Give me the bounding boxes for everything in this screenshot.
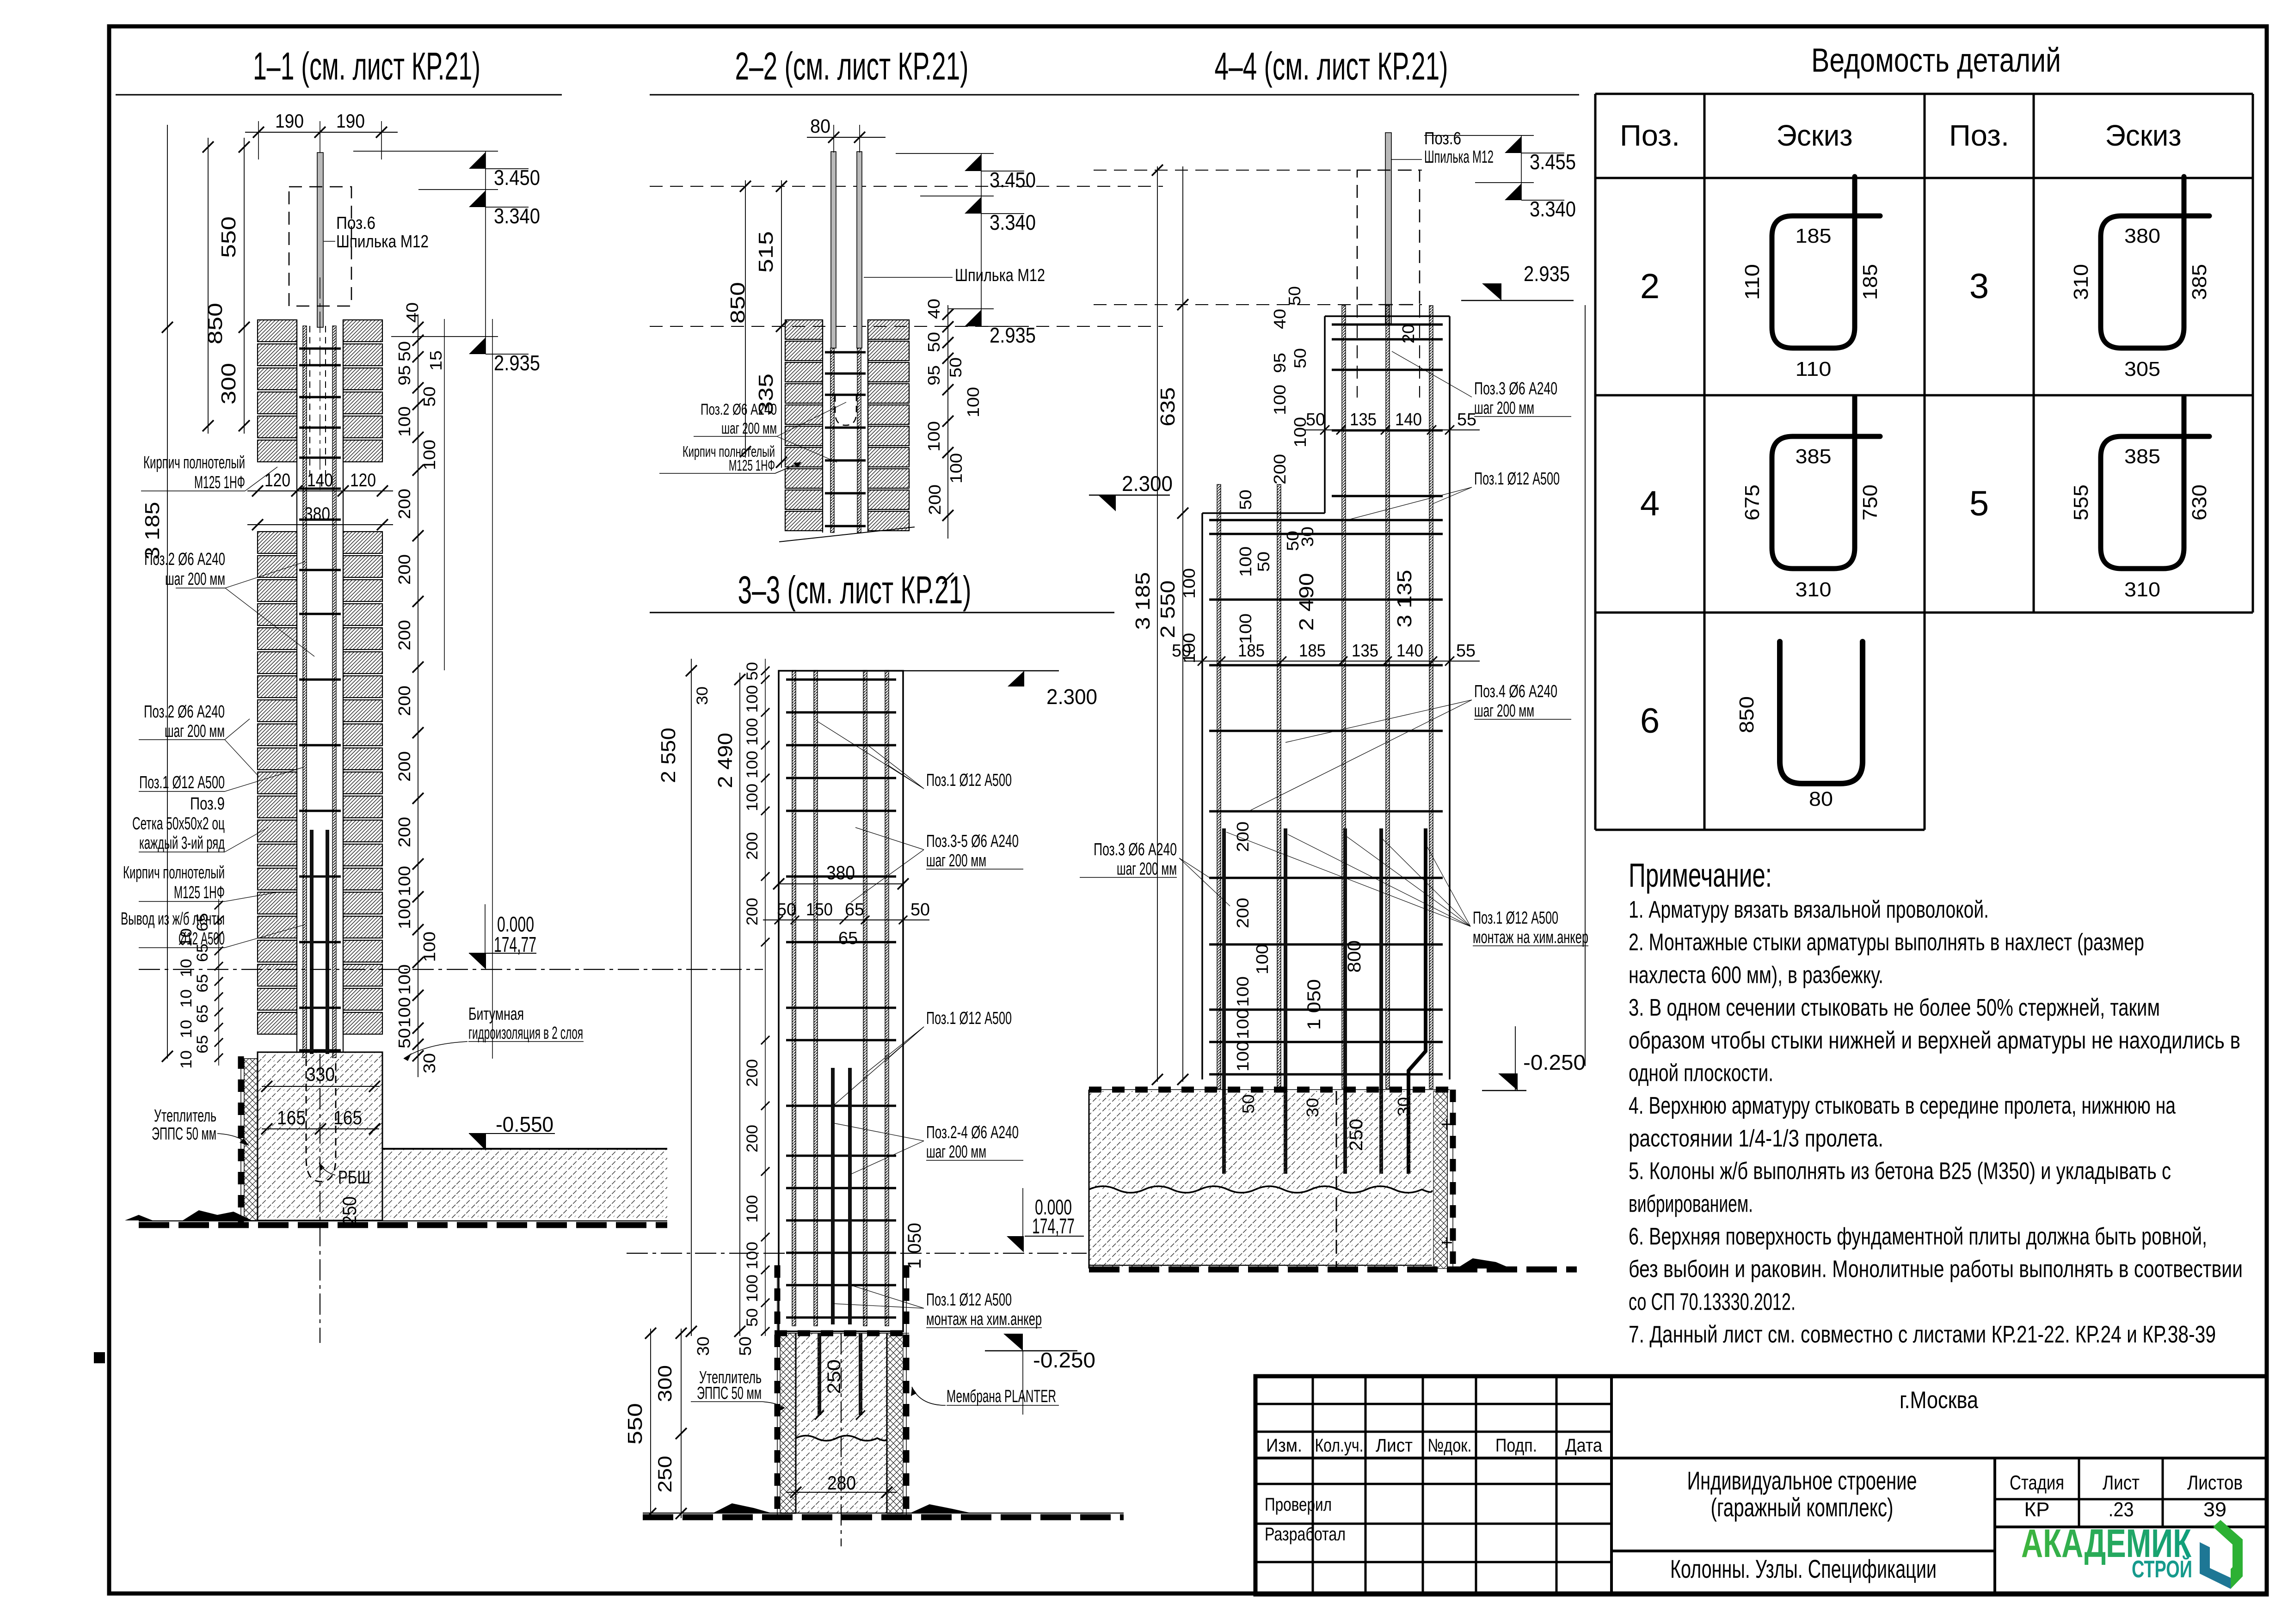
- svg-text:39: 39: [2203, 1498, 2226, 1521]
- svg-text:монтаж на хим.анкер: монтаж на хим.анкер: [1473, 928, 1588, 947]
- svg-text:Сетка 50х50х2 оц: Сетка 50х50х2 оц: [132, 814, 225, 833]
- svg-text:65: 65: [194, 913, 211, 932]
- svg-text:190: 190: [275, 110, 304, 132]
- svg-text:Поз.6: Поз.6: [1424, 129, 1461, 148]
- svg-text:385: 385: [2188, 264, 2211, 300]
- svg-text:Поз.1 Ø12 А500: Поз.1 Ø12 А500: [1473, 908, 1558, 928]
- svg-text:(гаражный комплекс): (гаражный комплекс): [1711, 1493, 1894, 1522]
- svg-text:190: 190: [336, 110, 365, 132]
- svg-text:4. Верхнюю арматуру стыковать: 4. Верхнюю арматуру стыковать в середине…: [1629, 1092, 2176, 1119]
- svg-text:Примечание:: Примечание:: [1629, 857, 1772, 894]
- svg-text:монтаж на хим.анкер: монтаж на хим.анкер: [926, 1310, 1042, 1329]
- svg-text:200: 200: [395, 686, 414, 716]
- svg-text:174,77: 174,77: [1032, 1214, 1075, 1238]
- svg-text:3 185: 3 185: [1132, 572, 1154, 630]
- svg-text:200: 200: [1233, 821, 1252, 852]
- svg-text:шаг 200 мм: шаг 200 мм: [1474, 701, 1534, 721]
- svg-text:Поз.3 Ø6 А240: Поз.3 Ø6 А240: [1474, 379, 1557, 398]
- svg-text:15: 15: [426, 350, 445, 371]
- svg-text:385: 385: [2124, 445, 2160, 468]
- svg-text:10: 10: [178, 928, 195, 947]
- svg-text:100: 100: [1236, 613, 1255, 644]
- svg-text:2.300: 2.300: [1046, 685, 1097, 709]
- svg-text:2–2 (см. лист КР.21): 2–2 (см. лист КР.21): [735, 44, 969, 88]
- svg-text:50: 50: [946, 357, 965, 378]
- svg-text:Поз.3 Ø6 А240: Поз.3 Ø6 А240: [1094, 840, 1177, 859]
- svg-text:50: 50: [777, 900, 796, 919]
- svg-text:100: 100: [744, 718, 761, 746]
- svg-text:2 490: 2 490: [1295, 573, 1318, 631]
- svg-text:50: 50: [744, 662, 761, 680]
- svg-text:2 550: 2 550: [657, 728, 680, 783]
- svg-text:675: 675: [1741, 484, 1764, 521]
- svg-text:555: 555: [2070, 484, 2092, 521]
- svg-text:100: 100: [395, 866, 414, 896]
- svg-text:вибрированием.: вибрированием.: [1629, 1190, 1753, 1217]
- svg-text:30: 30: [694, 1336, 713, 1356]
- svg-text:95: 95: [395, 365, 414, 386]
- svg-text:50: 50: [1285, 286, 1304, 306]
- svg-text:65: 65: [845, 900, 864, 919]
- svg-text:50: 50: [910, 900, 930, 919]
- svg-text:50: 50: [1254, 552, 1273, 572]
- svg-text:М125 1НФ: М125 1НФ: [194, 473, 245, 492]
- svg-text:100: 100: [1233, 1041, 1252, 1072]
- svg-text:каждый 3-ий ряд: каждый 3-ий ряд: [139, 833, 225, 853]
- svg-text:5: 5: [1969, 484, 1989, 523]
- svg-text:50: 50: [420, 386, 439, 407]
- svg-text:Стадия: Стадия: [2010, 1471, 2064, 1494]
- svg-text:120: 120: [264, 470, 290, 490]
- svg-text:Кирпич полнотелый: Кирпич полнотелый: [143, 453, 245, 472]
- svg-text:100: 100: [1270, 385, 1289, 415]
- svg-text:-0.550: -0.550: [496, 1112, 554, 1136]
- svg-text:2.935: 2.935: [1524, 262, 1570, 286]
- svg-text:шаг 200 мм: шаг 200 мм: [721, 420, 777, 437]
- svg-text:2.935: 2.935: [990, 323, 1036, 347]
- svg-text:630: 630: [2188, 484, 2211, 521]
- svg-text:30: 30: [1394, 1097, 1413, 1116]
- svg-text:Поз.1 Ø12 А500: Поз.1 Ø12 А500: [926, 1009, 1012, 1028]
- svg-text:200: 200: [395, 817, 414, 847]
- svg-text:40: 40: [924, 299, 943, 319]
- svg-text:100: 100: [744, 685, 761, 713]
- svg-text:шаг 200 мм: шаг 200 мм: [165, 570, 225, 589]
- svg-text:200: 200: [1270, 454, 1289, 484]
- svg-text:Проверил: Проверил: [1265, 1495, 1332, 1515]
- svg-text:10: 10: [178, 989, 195, 1008]
- svg-text:образом чтобы стыки нижней и в: образом чтобы стыки нижней и верхней арм…: [1629, 1027, 2240, 1054]
- svg-text:-0.250: -0.250: [1523, 1050, 1586, 1074]
- svg-text:120: 120: [350, 470, 376, 490]
- svg-text:380: 380: [2124, 225, 2160, 247]
- svg-text:135: 135: [1352, 641, 1378, 661]
- svg-text:7. Данный лист см. совместно с: 7. Данный лист см. совместно с листами К…: [1629, 1321, 2216, 1348]
- svg-text:Эскиз: Эскиз: [2105, 119, 2182, 152]
- svg-text:300: 300: [217, 363, 240, 404]
- svg-text:1. Арматуру вязать вязальной п: 1. Арматуру вязать вязальной проволокой.: [1629, 896, 1989, 923]
- svg-text:100: 100: [964, 387, 983, 417]
- svg-text:550: 550: [217, 216, 240, 258]
- svg-text:140: 140: [1396, 641, 1423, 661]
- svg-text:-0.250: -0.250: [1033, 1348, 1095, 1372]
- svg-text:135: 135: [1350, 410, 1377, 429]
- svg-text:3.450: 3.450: [494, 165, 540, 190]
- svg-text:2 490: 2 490: [714, 733, 737, 788]
- svg-text:850: 850: [726, 282, 749, 324]
- svg-text:10: 10: [178, 1050, 195, 1069]
- svg-text:Утеплитель: Утеплитель: [154, 1106, 216, 1126]
- svg-text:Шпилька М12: Шпилька М12: [1424, 147, 1494, 167]
- svg-text:20: 20: [1399, 324, 1418, 343]
- svg-text:Листов: Листов: [2187, 1471, 2243, 1494]
- svg-text:200: 200: [925, 484, 944, 515]
- svg-text:Мембрана PLANTER: Мембрана PLANTER: [947, 1387, 1056, 1406]
- svg-text:850: 850: [204, 303, 227, 344]
- svg-text:110: 110: [1741, 264, 1764, 300]
- svg-text:100: 100: [744, 1275, 761, 1302]
- svg-text:30: 30: [1298, 527, 1317, 547]
- svg-text:3.340: 3.340: [990, 210, 1036, 234]
- svg-text:Лист: Лист: [2103, 1471, 2140, 1494]
- svg-text:165: 165: [333, 1107, 362, 1128]
- svg-text:Поз.6: Поз.6: [336, 214, 375, 233]
- svg-text:Ведомость деталий: Ведомость деталий: [1811, 42, 2061, 79]
- svg-text:635: 635: [1156, 387, 1179, 427]
- svg-text:550: 550: [624, 1403, 646, 1445]
- svg-text:Индивидуальное строение: Индивидуальное строение: [1687, 1466, 1917, 1495]
- svg-text:30: 30: [694, 686, 711, 705]
- svg-text:Поз.3-5 Ø6 А240: Поз.3-5 Ø6 А240: [926, 832, 1019, 851]
- svg-text:Поз.2 Ø6 А240: Поз.2 Ø6 А240: [144, 550, 225, 569]
- svg-text:40: 40: [403, 302, 422, 323]
- svg-text:80: 80: [810, 115, 830, 137]
- svg-text:Поз.: Поз.: [1949, 119, 2009, 152]
- svg-text:100: 100: [744, 1242, 761, 1269]
- svg-text:ЭППС 50 мм: ЭППС 50 мм: [697, 1384, 762, 1403]
- svg-text:100: 100: [1291, 417, 1310, 447]
- svg-text:65: 65: [194, 1035, 211, 1054]
- svg-text:ЭППС 50 мм: ЭППС 50 мм: [152, 1124, 216, 1144]
- svg-text:750: 750: [1859, 484, 1882, 521]
- svg-text:Поз.1 Ø12 А500: Поз.1 Ø12 А500: [926, 771, 1012, 790]
- svg-text:100: 100: [395, 406, 414, 437]
- svg-text:380: 380: [826, 862, 855, 883]
- svg-text:385: 385: [1796, 445, 1832, 468]
- svg-text:174,77: 174,77: [494, 932, 536, 956]
- svg-text:40: 40: [1270, 309, 1289, 329]
- svg-text:Кирпич полнотелый: Кирпич полнотелый: [123, 863, 225, 882]
- svg-text:100: 100: [1236, 546, 1255, 577]
- svg-text:100: 100: [744, 784, 761, 811]
- svg-text:3.340: 3.340: [1530, 197, 1576, 221]
- svg-text:Колонны. Узлы. Спецификации: Колонны. Узлы. Спецификации: [1670, 1554, 1937, 1583]
- svg-text:3 135: 3 135: [1393, 570, 1416, 628]
- svg-text:шаг 200 мм: шаг 200 мм: [926, 851, 986, 870]
- svg-text:185: 185: [1796, 225, 1832, 247]
- svg-text:3: 3: [1969, 267, 1989, 306]
- svg-text:200: 200: [1233, 898, 1252, 928]
- svg-text:250: 250: [1346, 1119, 1366, 1151]
- svg-text:200: 200: [744, 832, 761, 860]
- svg-text:6: 6: [1640, 701, 1660, 741]
- svg-text:140: 140: [1395, 410, 1422, 429]
- svg-text:со СП 70.13330.2012.: со СП 70.13330.2012.: [1629, 1288, 1796, 1315]
- svg-text:2 550: 2 550: [1156, 581, 1179, 638]
- svg-text:СТРОЙ: СТРОЙ: [2132, 1556, 2192, 1583]
- svg-text:30: 30: [420, 1053, 439, 1073]
- svg-text:Шпилька М12: Шпилька М12: [955, 266, 1045, 285]
- svg-text:КР: КР: [2024, 1498, 2050, 1521]
- svg-text:1 050: 1 050: [904, 1223, 925, 1269]
- svg-text:шаг 200 мм: шаг 200 мм: [165, 722, 225, 741]
- svg-text:4–4 (см. лист КР.21): 4–4 (см. лист КР.21): [1215, 44, 1448, 88]
- svg-text:Поз.4 Ø6 А240: Поз.4 Ø6 А240: [1474, 682, 1557, 701]
- svg-text:50: 50: [1239, 1094, 1258, 1114]
- svg-text:5. Колоны ж/б выполнять из бет: 5. Колоны ж/б выполнять из бетона В25 (М…: [1629, 1158, 2171, 1185]
- svg-text:3.455: 3.455: [1530, 150, 1576, 174]
- svg-text:30: 30: [1303, 1098, 1322, 1117]
- svg-text:150: 150: [806, 900, 833, 919]
- svg-text:100: 100: [924, 421, 943, 452]
- svg-text:100: 100: [420, 440, 439, 470]
- svg-text:Поз.1 Ø12 А500: Поз.1 Ø12 А500: [139, 773, 225, 792]
- svg-text:515: 515: [755, 231, 777, 273]
- svg-text:Поз.1 Ø12 А500: Поз.1 Ø12 А500: [1474, 469, 1560, 489]
- svg-text:200: 200: [395, 620, 414, 650]
- svg-text:200: 200: [395, 554, 414, 585]
- svg-text:300: 300: [654, 1365, 676, 1402]
- svg-text:185: 185: [1299, 641, 1326, 661]
- svg-text:50: 50: [1236, 490, 1255, 510]
- svg-text:50: 50: [924, 332, 943, 352]
- svg-text:одной плоскости.: одной плоскости.: [1629, 1060, 1773, 1087]
- svg-text:Поз.1 Ø12 А500: Поз.1 Ø12 А500: [926, 1290, 1012, 1310]
- svg-text:100: 100: [744, 1195, 761, 1223]
- svg-text:65: 65: [194, 974, 211, 993]
- svg-text:65: 65: [194, 944, 211, 962]
- svg-text:850: 850: [1735, 696, 1758, 733]
- svg-text:800: 800: [1344, 940, 1365, 973]
- svg-text:Подп.: Подп.: [1495, 1435, 1537, 1456]
- svg-text:Поз.2 Ø6 А240: Поз.2 Ø6 А240: [701, 401, 777, 418]
- svg-text:3. В одном сечении стыковать н: 3. В одном сечении стыковать не более 50…: [1629, 994, 2160, 1021]
- svg-text:2. Монтажные стыки арматуры вы: 2. Монтажные стыки арматуры выполнять в …: [1629, 929, 2144, 956]
- svg-text:165: 165: [277, 1107, 306, 1128]
- svg-text:Поз.2-4 Ø6 А240: Поз.2-4 Ø6 А240: [926, 1123, 1019, 1142]
- svg-text:шаг 200 мм: шаг 200 мм: [926, 1142, 986, 1162]
- svg-text:.23: .23: [2109, 1498, 2134, 1521]
- svg-text:10: 10: [178, 959, 195, 977]
- svg-text:100: 100: [1180, 633, 1199, 663]
- svg-text:100: 100: [1233, 1009, 1252, 1039]
- svg-text:95: 95: [924, 365, 943, 386]
- svg-text:250: 250: [654, 1456, 676, 1493]
- svg-text:200: 200: [744, 898, 761, 925]
- svg-text:100: 100: [947, 453, 966, 484]
- svg-text:200: 200: [744, 1125, 761, 1152]
- svg-text:Лист: Лист: [1376, 1435, 1413, 1456]
- svg-text:6. Верхняя поверхность фундаме: 6. Верхняя поверхность фундаментной плит…: [1629, 1223, 2207, 1250]
- svg-text:50: 50: [395, 341, 414, 362]
- svg-text:2.935: 2.935: [494, 351, 540, 375]
- svg-text:100: 100: [744, 751, 761, 778]
- svg-text:310: 310: [1796, 578, 1832, 601]
- svg-text:50: 50: [736, 1336, 755, 1356]
- svg-text:Эскиз: Эскиз: [1777, 119, 1853, 152]
- svg-text:2: 2: [1640, 267, 1660, 306]
- svg-text:110: 110: [1796, 358, 1832, 380]
- svg-text:Изм.: Изм.: [1266, 1435, 1302, 1456]
- svg-text:4: 4: [1640, 484, 1660, 523]
- svg-text:№док.: №док.: [1428, 1435, 1472, 1456]
- svg-text:10: 10: [178, 1020, 195, 1038]
- svg-text:Шпилька М12: Шпилька М12: [336, 232, 429, 251]
- svg-text:3–3 (см. лист КР.21): 3–3 (см. лист КР.21): [738, 568, 972, 612]
- svg-text:гидроизоляция в 2 слоя: гидроизоляция в 2 слоя: [468, 1023, 583, 1043]
- svg-text:380: 380: [304, 504, 330, 524]
- svg-text:50: 50: [744, 1308, 761, 1327]
- svg-text:3.450: 3.450: [990, 168, 1036, 192]
- svg-text:80: 80: [1809, 788, 1833, 810]
- svg-text:200: 200: [744, 1059, 761, 1087]
- svg-text:185: 185: [1859, 264, 1882, 300]
- svg-text:3.340: 3.340: [494, 204, 540, 228]
- svg-text:Поз.9: Поз.9: [190, 794, 225, 814]
- svg-text:140: 140: [307, 470, 333, 490]
- svg-text:расстоянии 1/4-1/3 пролета.: расстоянии 1/4-1/3 пролета.: [1629, 1125, 1883, 1152]
- svg-text:310: 310: [2124, 578, 2160, 601]
- svg-text:100: 100: [1253, 944, 1272, 974]
- svg-text:Поз.: Поз.: [1620, 119, 1680, 152]
- svg-text:55: 55: [1456, 641, 1476, 661]
- svg-text:100: 100: [1233, 976, 1252, 1007]
- svg-text:шаг 200 мм: шаг 200 мм: [1117, 859, 1177, 879]
- svg-text:305: 305: [2124, 358, 2160, 380]
- svg-text:100: 100: [1180, 568, 1199, 599]
- svg-text:М125 1НФ: М125 1НФ: [174, 883, 225, 902]
- svg-text:Кол.уч.: Кол.уч.: [1315, 1435, 1364, 1456]
- svg-text:65: 65: [194, 1005, 211, 1023]
- svg-text:без выбоин и раковин. Монолитн: без выбоин и раковин. Монолитные работы …: [1629, 1256, 2243, 1283]
- svg-text:200: 200: [395, 751, 414, 782]
- svg-text:50: 50: [395, 1028, 414, 1048]
- svg-text:шаг 200 мм: шаг 200 мм: [1474, 398, 1534, 418]
- svg-text:50: 50: [1291, 348, 1310, 368]
- svg-text:310: 310: [2070, 264, 2092, 300]
- svg-text:Разработал: Разработал: [1265, 1524, 1346, 1544]
- svg-text:г.Москва: г.Москва: [1900, 1387, 1978, 1414]
- svg-text:Битумная: Битумная: [468, 1005, 524, 1024]
- svg-text:Дата: Дата: [1565, 1435, 1603, 1456]
- svg-text:65: 65: [838, 929, 858, 948]
- svg-text:95: 95: [1270, 353, 1289, 373]
- svg-text:2.300: 2.300: [1122, 472, 1173, 496]
- svg-text:100: 100: [395, 997, 414, 1028]
- svg-text:Поз.2 Ø6 А240: Поз.2 Ø6 А240: [144, 702, 225, 722]
- svg-text:М125 1НФ: М125 1НФ: [729, 457, 775, 474]
- svg-text:200: 200: [395, 489, 414, 519]
- svg-text:1 050: 1 050: [1304, 979, 1324, 1030]
- svg-text:100: 100: [420, 932, 439, 962]
- svg-text:100: 100: [395, 899, 414, 929]
- svg-text:55: 55: [1457, 410, 1476, 429]
- svg-text:нахлеста 600 мм), в разбежку.: нахлеста 600 мм), в разбежку.: [1629, 962, 1883, 988]
- svg-text:1–1 (см. лист КР.21): 1–1 (см. лист КР.21): [253, 44, 480, 88]
